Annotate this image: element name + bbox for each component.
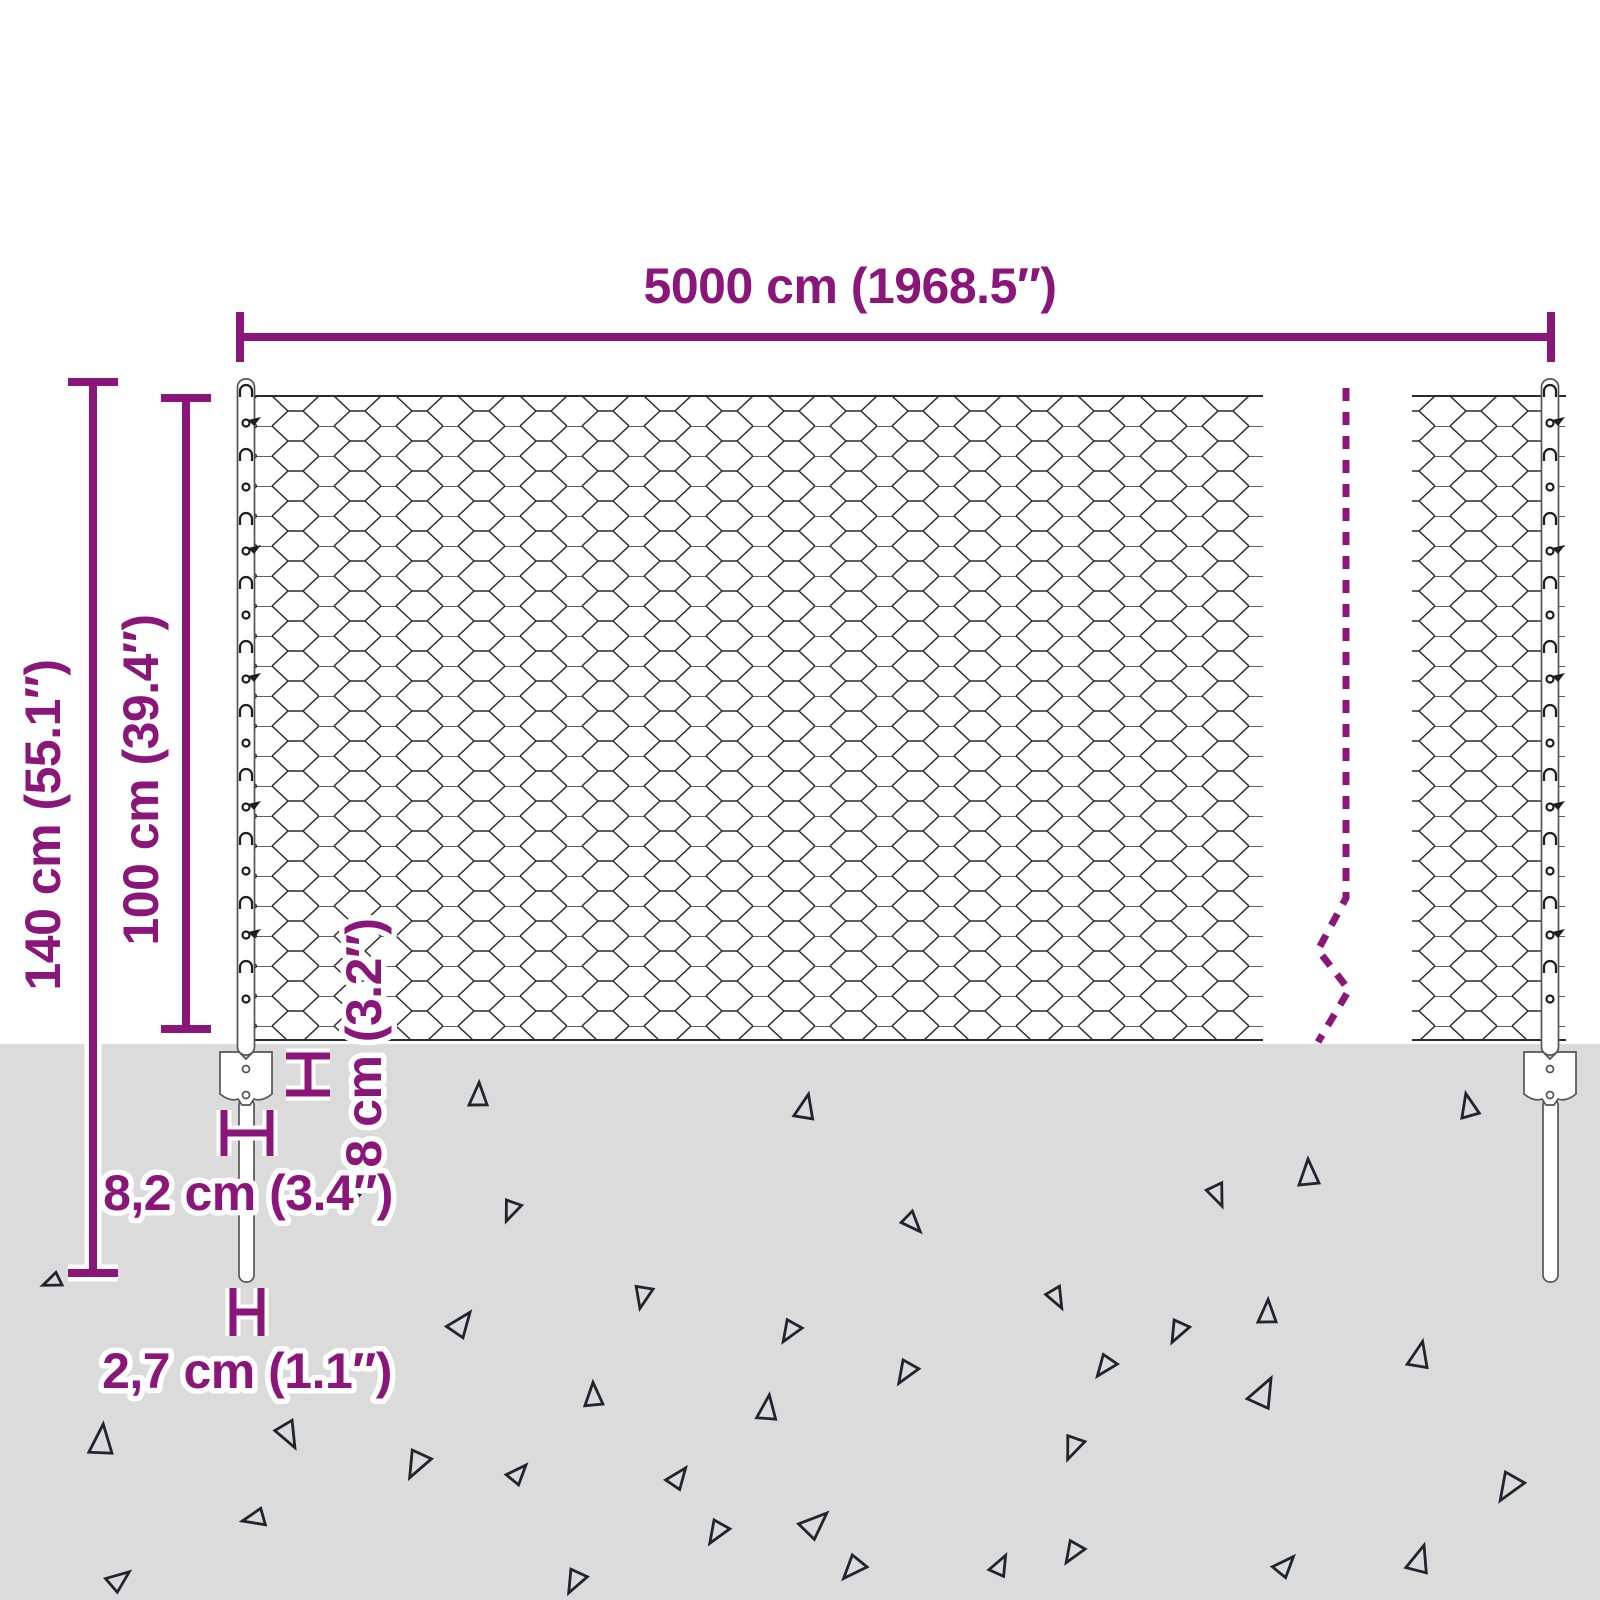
chainlink-mesh-main [255, 396, 1263, 1040]
label-anchor-offset: 8 cm (3.2″) [336, 918, 392, 1167]
ground-spike-right [1543, 1098, 1558, 1282]
plate-hole [243, 1066, 250, 1073]
label-plate-width: 8,2 cm (3.4″) [103, 1165, 393, 1221]
diagram-canvas: 5000 cm (1968.5″) 140 cm (55.1″) 100 cm … [0, 0, 1600, 1600]
plate-hole [243, 1092, 250, 1099]
label-post-width: 2,7 cm (1.1″) [102, 1343, 392, 1399]
label-total-height: 140 cm (55.1″) [15, 659, 71, 990]
label-fence-height: 100 cm (39.4″) [113, 614, 169, 945]
dimension-line-total-width [240, 312, 1551, 362]
fence-dimension-diagram: 5000 cm (1968.5″) 140 cm (55.1″) 100 cm … [0, 0, 1600, 1600]
break-line [1318, 388, 1349, 1042]
label-total-width: 5000 cm (1968.5″) [644, 258, 1057, 314]
plate-hole [1547, 1066, 1554, 1073]
plate-hole [1547, 1092, 1554, 1099]
